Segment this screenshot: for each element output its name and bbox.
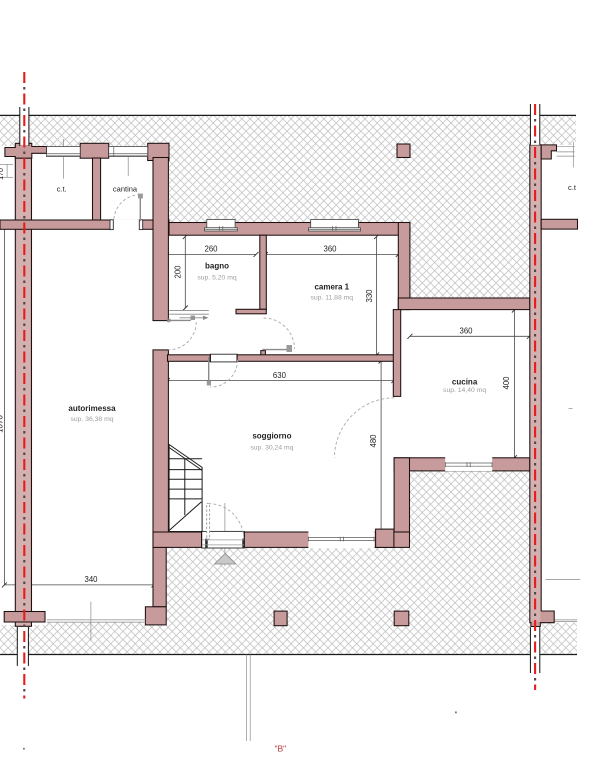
svg-text:360: 360: [459, 327, 473, 336]
svg-text:sup. 5,20 mq: sup. 5,20 mq: [197, 275, 237, 282]
svg-text:sup. 36,38 mq: sup. 36,38 mq: [70, 416, 113, 423]
svg-text:200: 200: [174, 265, 183, 279]
svg-text:630: 630: [273, 371, 287, 380]
svg-text:autorimessa: autorimessa: [68, 404, 116, 413]
svg-text:c.t.: c.t.: [57, 185, 67, 194]
svg-text:480: 480: [369, 434, 378, 448]
svg-text:170: 170: [0, 168, 5, 180]
svg-text:"B": "B": [274, 744, 286, 754]
svg-text:soggiorno: soggiorno: [252, 432, 291, 441]
svg-text:sup. 14,40 mq: sup. 14,40 mq: [443, 387, 486, 394]
svg-text:cantina: cantina: [113, 185, 138, 194]
svg-text:camera 1: camera 1: [314, 283, 349, 292]
svg-text:330: 330: [365, 289, 374, 303]
svg-text:360: 360: [323, 245, 337, 254]
svg-text:sup. 30,24 mq: sup. 30,24 mq: [250, 445, 293, 452]
svg-text:260: 260: [204, 245, 218, 254]
svg-text:cucina: cucina: [452, 378, 478, 387]
svg-text:bagno: bagno: [205, 262, 229, 271]
svg-text:sup. 11,88 mq: sup. 11,88 mq: [311, 295, 354, 302]
svg-text:400: 400: [502, 376, 511, 390]
svg-text:c.t: c.t: [568, 183, 577, 192]
svg-text:340: 340: [84, 575, 98, 584]
svg-text:1070: 1070: [0, 415, 5, 433]
